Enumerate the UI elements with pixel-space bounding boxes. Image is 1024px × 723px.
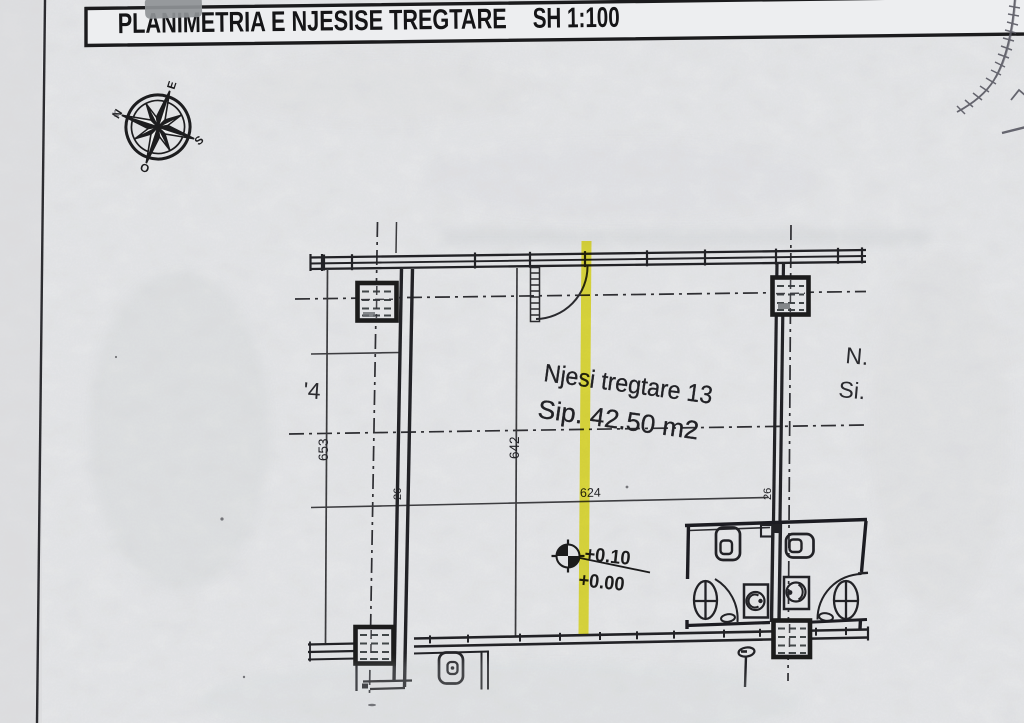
svg-text:SH 1:100: SH 1:100: [532, 2, 619, 35]
svg-text:N.: N.: [845, 342, 870, 370]
svg-text:26: 26: [762, 488, 774, 500]
svg-text:'4: '4: [303, 377, 322, 404]
svg-text:642: 642: [507, 436, 522, 459]
svg-text:26: 26: [392, 488, 404, 500]
svg-text:Si.: Si.: [838, 376, 867, 404]
svg-text:653: 653: [316, 438, 331, 461]
